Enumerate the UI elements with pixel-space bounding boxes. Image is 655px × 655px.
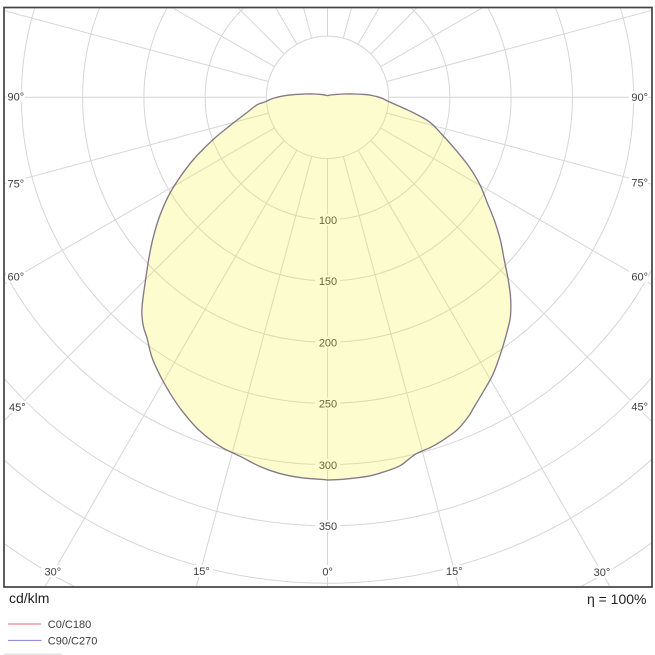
- svg-text:15°: 15°: [193, 566, 210, 578]
- svg-text:45°: 45°: [9, 402, 26, 414]
- svg-text:45°: 45°: [631, 402, 648, 414]
- svg-text:C90/C270: C90/C270: [48, 635, 98, 647]
- svg-text:C0/C180: C0/C180: [48, 619, 91, 631]
- svg-text:90°: 90°: [8, 92, 25, 104]
- svg-text:30°: 30°: [44, 567, 61, 579]
- svg-text:90°: 90°: [631, 92, 648, 104]
- svg-text:60°: 60°: [631, 272, 648, 284]
- svg-text:60°: 60°: [8, 272, 25, 284]
- svg-text:η = 100%: η = 100%: [587, 591, 647, 607]
- svg-text:30°: 30°: [594, 567, 611, 579]
- svg-text:75°: 75°: [631, 178, 648, 190]
- svg-text:75°: 75°: [8, 179, 25, 191]
- svg-text:350: 350: [319, 521, 337, 533]
- svg-text:0°: 0°: [322, 567, 333, 579]
- svg-text:cd/klm: cd/klm: [9, 590, 49, 606]
- svg-text:15°: 15°: [446, 566, 463, 578]
